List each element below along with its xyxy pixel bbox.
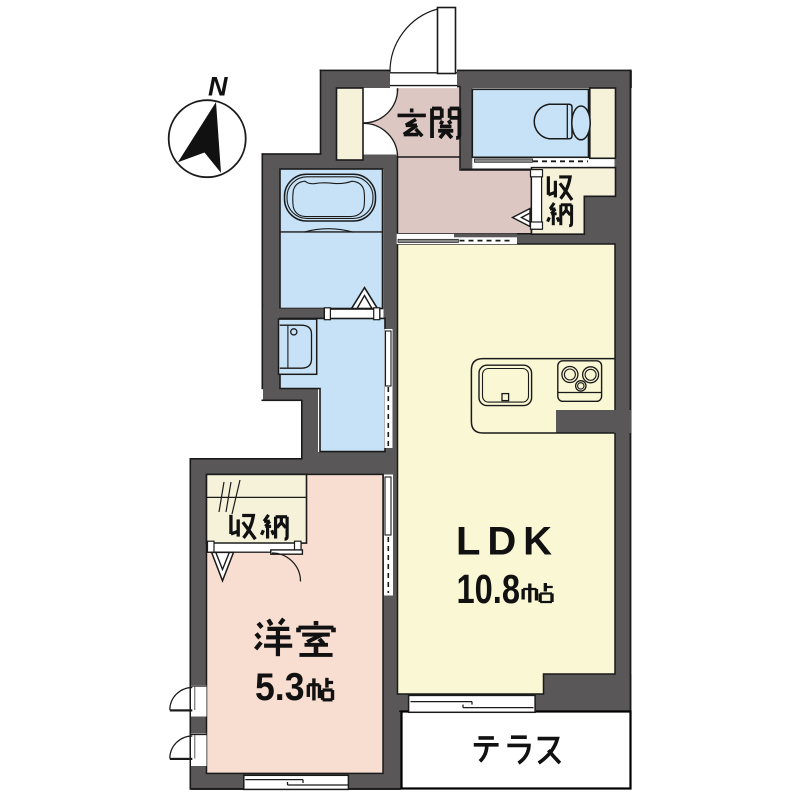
svg-text:LDK: LDK — [456, 520, 552, 564]
svg-text:10.8: 10.8 — [457, 566, 521, 612]
svg-text:N: N — [208, 72, 228, 102]
svg-text:5.3: 5.3 — [255, 666, 305, 709]
